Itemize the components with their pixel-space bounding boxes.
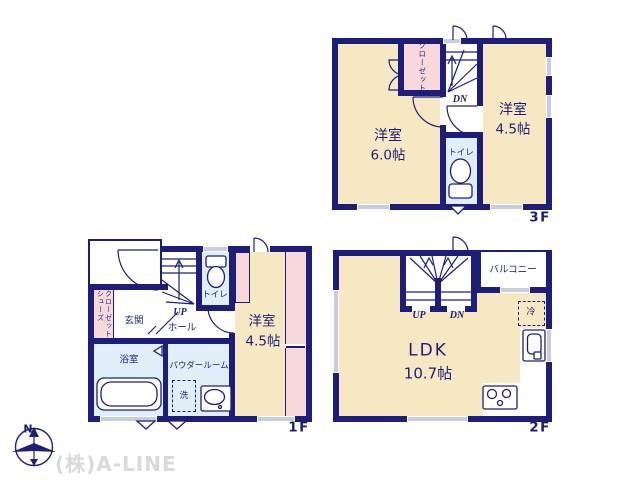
f3-closet-label: クローゼット [418,42,426,93]
vent-triangle-3f [450,206,466,214]
f2-door-arcs [453,237,468,252]
toilet-icon-3f [449,159,472,198]
f1-shoes-closet-label: シューズ クローゼット [97,290,112,338]
f1-floor-label: 1F [288,421,310,435]
f2-floor-label: 2F [529,421,551,435]
f2-ldk-size: 10.7帖 [404,367,452,382]
f3-room-45-name: 洋室 [499,103,527,117]
vent-triangles-1f [137,421,186,429]
f1-room-size: 4.5帖 [246,335,281,349]
f1-entrance-label: 玄関 [124,316,143,326]
bath-door-mark [154,346,162,356]
shoes-closet-col2: クローゼット [105,290,112,338]
f3-toilet-label: トイレ [448,149,474,158]
shoes-closet-col1: シューズ [97,290,104,322]
f1-up-label: UP [173,308,186,318]
f3-dn-label: DN [453,95,467,105]
f1-laundry-label: 洗 [180,392,189,401]
washbasin-icon [201,386,231,411]
toilet-icon-1f [206,256,226,288]
f3-room-45-size: 4.5帖 [496,123,531,137]
f2-up-label: UP [412,311,425,321]
compass-icon [12,427,56,466]
f3-room-6-name: 洋室 [374,129,402,143]
f1-room-name: 洋室 [249,315,276,329]
f3-floor-label: 3F [529,211,551,225]
f1-stairs [162,259,196,304]
kitchen-sink-icon [523,330,545,361]
linework-overlay [0,0,640,480]
floor-plan-canvas: 洋室 6.0帖 洋室 4.5帖 クローゼット DN トイレ 3F LDK 10. [0,0,640,480]
f3-room-6-size: 6.0帖 [371,149,406,163]
closet-door-arcs [389,60,404,90]
f2-ldk-name: LDK [408,343,448,360]
f2-dn-label: DN [450,311,464,321]
f2-refrigerator-label: 冷 [526,309,535,318]
f1-toilet-label: トイレ [202,291,228,300]
compass-north-label: N [23,424,32,435]
f3-stairs [446,50,477,92]
f1-hall-label: ホール [168,323,197,333]
bathtub-icon [97,378,161,410]
f1-bath-label: 浴室 [119,355,138,365]
f2-balcony-label: バルコニー [489,265,536,275]
stove-icon [483,386,517,409]
company-watermark: (株)A-LINE [55,448,177,477]
f1-powder-label: パウダールーム [169,362,228,371]
f2-stairs [406,256,471,300]
